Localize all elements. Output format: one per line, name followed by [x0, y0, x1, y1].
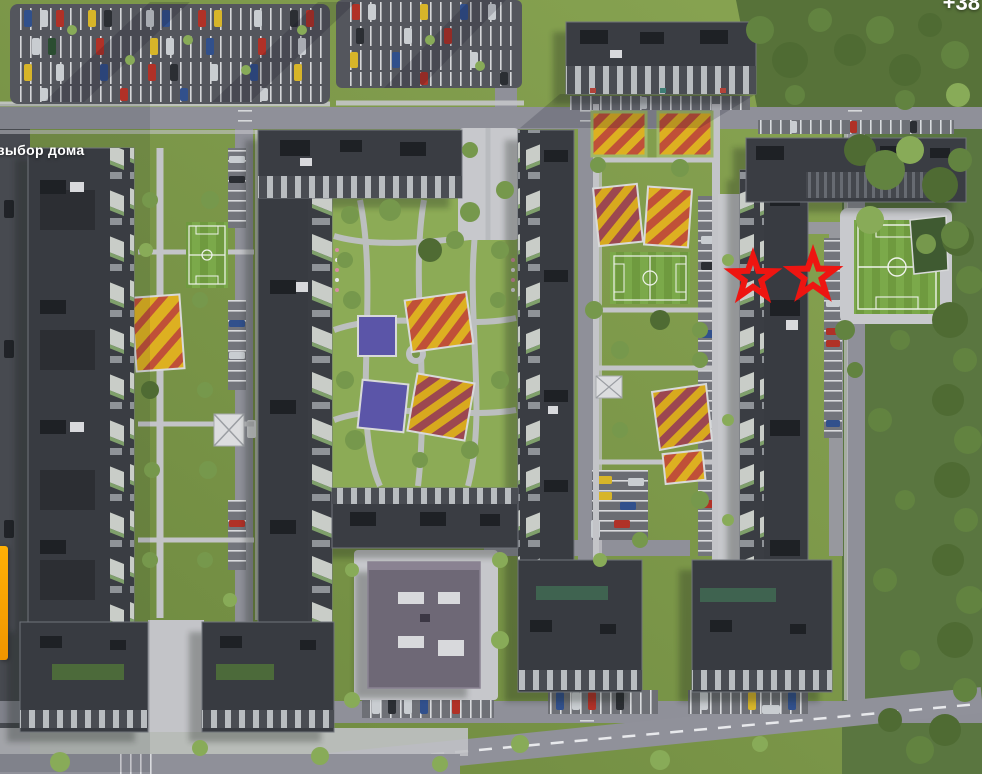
pavilion [214, 414, 244, 446]
house-select-label[interactable]: выбор дома [0, 142, 84, 158]
building-ring-south-wing[interactable] [332, 488, 518, 548]
building-school[interactable] [368, 562, 480, 688]
playground [663, 450, 706, 484]
playground [358, 316, 396, 356]
clipped-orange-element[interactable] [0, 546, 8, 660]
masterplan-map[interactable]: выбор дома +38 [0, 0, 982, 774]
playground [644, 187, 692, 248]
building-ring-west-foot[interactable] [202, 622, 334, 732]
building-ring-north-wing[interactable] [258, 130, 462, 198]
masterplan-canvas[interactable] [0, 0, 982, 774]
playground [405, 292, 474, 352]
building-west-slab[interactable] [28, 148, 134, 622]
building-west-foot[interactable] [20, 622, 148, 732]
mini-football-field [610, 252, 690, 304]
pavilion [596, 376, 622, 398]
building-ring-east-wing[interactable] [518, 130, 574, 560]
playground [407, 373, 474, 440]
playground [652, 384, 712, 450]
phone-partial-label[interactable]: +38 [943, 0, 980, 16]
building-east-wing[interactable] [740, 170, 808, 560]
building-ring-east-foot[interactable] [518, 560, 642, 692]
building-north-slab[interactable] [566, 22, 756, 94]
building-east-foot[interactable] [692, 560, 832, 692]
building-ring-west-wing[interactable] [258, 130, 332, 622]
playground [593, 184, 643, 246]
playground [358, 380, 409, 433]
mini-football-field [186, 222, 228, 288]
football-field-east [840, 208, 952, 324]
